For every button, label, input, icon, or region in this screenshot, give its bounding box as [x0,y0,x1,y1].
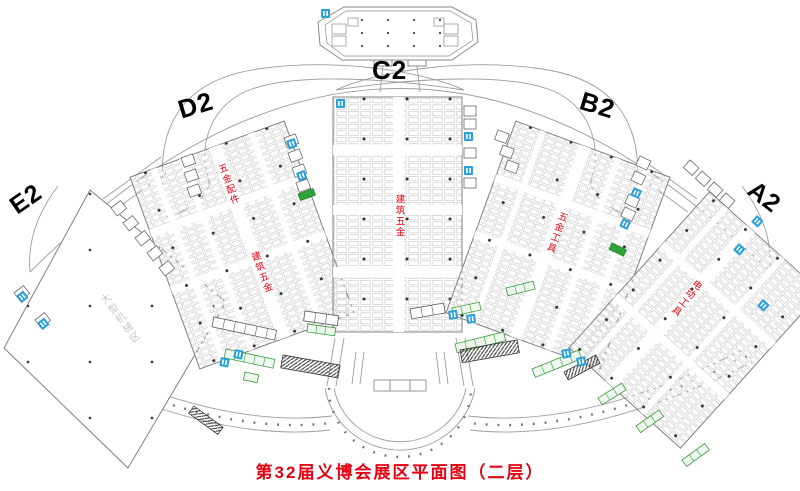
pavilion-outer-wall [318,7,478,60]
atrium-channels [327,338,473,386]
hall-C2-category: 建筑五金 [393,194,403,238]
restroom-icon [219,357,230,368]
pavilion-rooms [332,18,458,46]
restroom-icon [233,349,244,360]
pavilion-columns [361,19,441,47]
restroom-icon [576,356,587,367]
restroom-icon [751,215,764,228]
floor-plan: C2 D2 B2 E2 A2 五金配件 建筑五金 建筑五金 五金工具 电动工具 … [0,0,800,491]
restroom-icon [466,314,476,324]
restroom-icon [448,310,458,320]
restroom-icon [464,132,473,141]
atrium-ellipse-outer [325,388,475,450]
restroom-icon [464,166,473,175]
pavilion-inner-wall [325,11,473,56]
pavilion-stub-right [408,60,426,66]
restroom-icon [321,9,330,18]
plan-caption: 第32届义博会展区平面图（二层） [0,458,800,483]
ticks-atrium [329,388,471,457]
zone-label-C2: C2 [372,57,407,83]
atrium-bridge [374,380,426,391]
stair-hatch-sw [189,406,223,434]
restroom-icon [561,348,572,359]
atrium-ellipse-inner [334,388,466,442]
restroom-icon [336,99,345,108]
